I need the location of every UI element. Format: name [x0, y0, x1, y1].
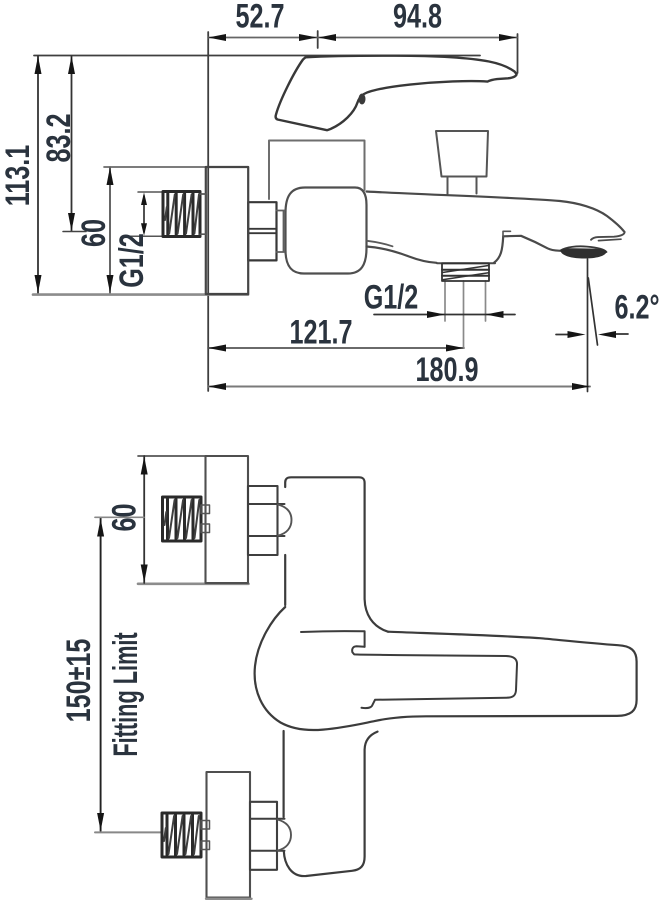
svg-text:121.7: 121.7	[290, 314, 353, 352]
svg-text:Fitting Limit: Fitting Limit	[107, 632, 145, 757]
svg-text:60: 60	[75, 219, 113, 247]
svg-text:6.2°: 6.2°	[614, 289, 659, 327]
svg-text:83.2: 83.2	[40, 113, 78, 162]
svg-text:180.9: 180.9	[416, 351, 479, 389]
svg-text:60: 60	[106, 504, 144, 532]
svg-text:94.8: 94.8	[393, 0, 442, 35]
svg-text:113.1: 113.1	[0, 145, 37, 207]
svg-text:G1/2: G1/2	[364, 279, 419, 317]
svg-text:G1/2: G1/2	[113, 233, 151, 288]
svg-text:150±15: 150±15	[60, 639, 98, 723]
svg-text:52.7: 52.7	[235, 0, 284, 35]
